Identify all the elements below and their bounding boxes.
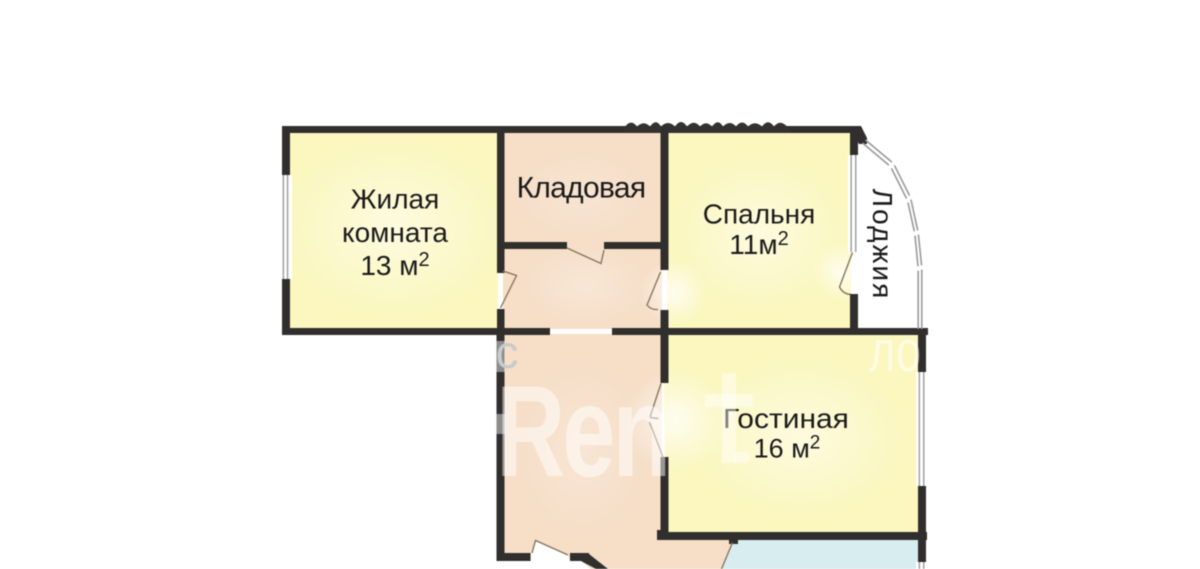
svg-text:Ren: Ren xyxy=(496,360,668,505)
svg-text:Лоджия: Лоджия xyxy=(867,189,898,301)
svg-text:Гостиная: Гостиная xyxy=(723,404,849,435)
svg-text:Кладовая: Кладовая xyxy=(517,172,646,205)
svg-text:Спальня: Спальня xyxy=(703,199,816,230)
svg-text:комната: комната xyxy=(342,217,448,248)
svg-text:ло: ло xyxy=(869,320,921,385)
svg-text:Жилая: Жилая xyxy=(351,184,440,215)
